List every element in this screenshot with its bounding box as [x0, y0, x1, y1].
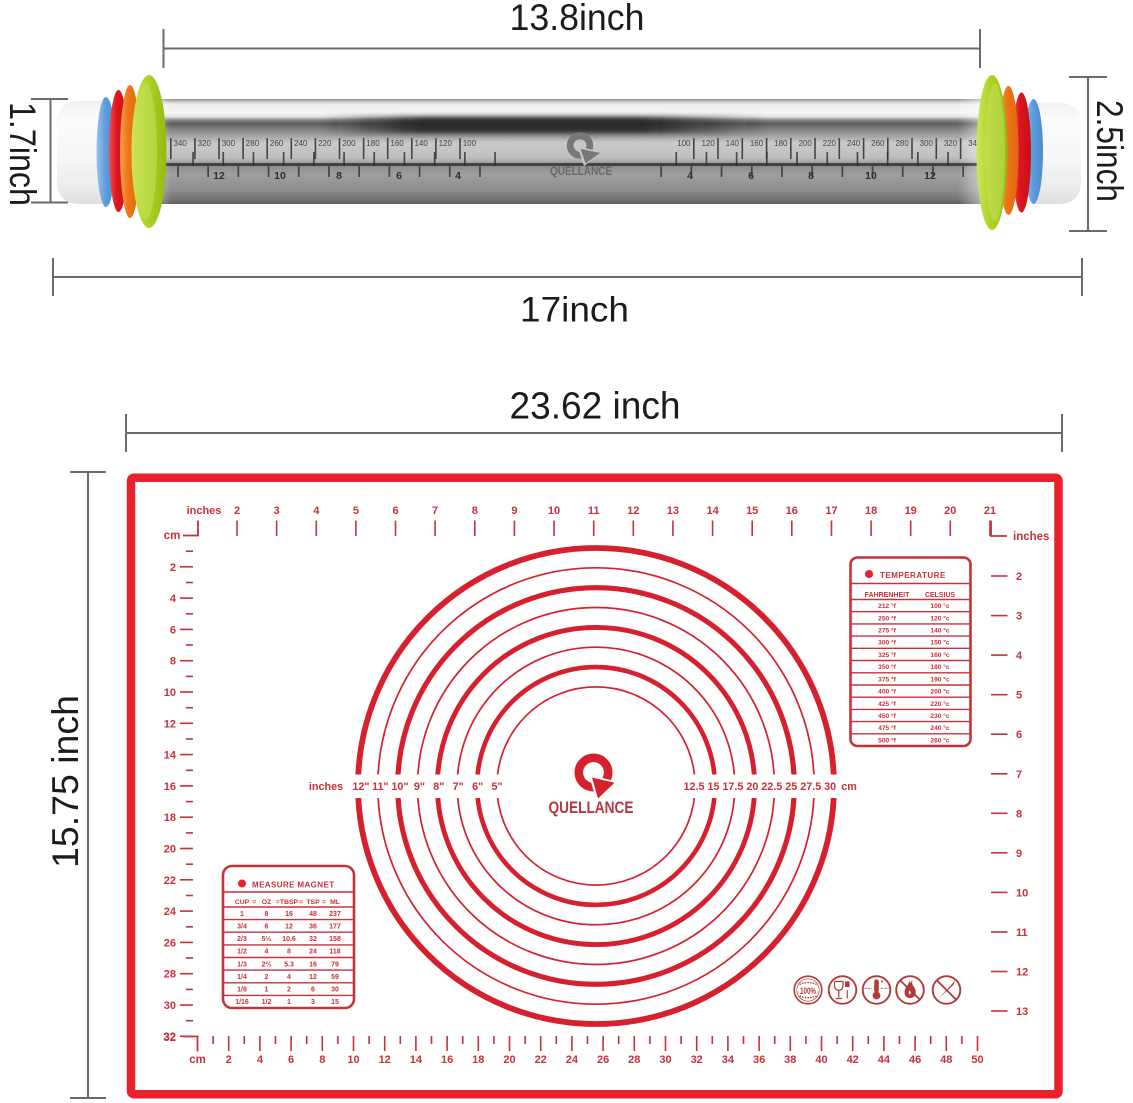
svg-text:48: 48: [940, 1054, 952, 1066]
svg-text:4: 4: [287, 974, 291, 981]
svg-text:18: 18: [472, 1054, 484, 1066]
svg-text:190 °c: 190 °c: [930, 675, 949, 683]
svg-text:27.5: 27.5: [800, 781, 821, 793]
svg-text:16: 16: [164, 781, 176, 793]
svg-text:25: 25: [785, 781, 797, 793]
svg-text:200: 200: [798, 139, 812, 148]
svg-text:38: 38: [784, 1054, 796, 1066]
svg-text:12: 12: [213, 170, 225, 182]
svg-text:=: =: [322, 899, 326, 906]
svg-text:10": 10": [391, 781, 408, 793]
svg-text:7: 7: [1016, 769, 1022, 781]
svg-text:inches: inches: [309, 781, 343, 793]
svg-text:9": 9": [414, 781, 425, 793]
svg-text:220: 220: [823, 139, 837, 148]
svg-text:MEASURE MAGNET: MEASURE MAGNET: [252, 881, 335, 890]
svg-text:1/3: 1/3: [237, 961, 247, 968]
svg-text:160: 160: [390, 139, 404, 148]
svg-text:12: 12: [627, 505, 639, 517]
svg-text:10: 10: [1016, 887, 1028, 899]
svg-text:8": 8": [433, 781, 444, 793]
svg-text:280: 280: [895, 139, 909, 148]
svg-text:16: 16: [285, 911, 293, 918]
svg-text:158: 158: [329, 936, 341, 943]
svg-text:10: 10: [548, 505, 560, 517]
svg-text:1/8: 1/8: [237, 987, 247, 994]
svg-text:CUP: CUP: [235, 899, 250, 906]
svg-text:20: 20: [746, 781, 758, 793]
svg-text:10: 10: [865, 170, 877, 182]
svg-text:4: 4: [687, 170, 693, 182]
svg-text:QUELLANCE: QUELLANCE: [549, 798, 634, 817]
svg-text:4: 4: [265, 949, 269, 956]
svg-text:11: 11: [1016, 927, 1028, 939]
svg-text:160: 160: [750, 139, 764, 148]
svg-text:12: 12: [379, 1054, 391, 1066]
svg-text:9: 9: [1016, 848, 1022, 860]
svg-text:36: 36: [309, 923, 317, 930]
svg-text:cm: cm: [841, 781, 857, 793]
svg-text:14: 14: [706, 505, 719, 517]
svg-text:2: 2: [1016, 571, 1022, 583]
svg-text:2⅔: 2⅔: [262, 961, 272, 968]
svg-text:6: 6: [392, 505, 398, 517]
svg-text:22: 22: [535, 1054, 547, 1066]
svg-text:40: 40: [815, 1054, 827, 1066]
svg-text:16: 16: [309, 961, 317, 968]
svg-text:59: 59: [331, 974, 339, 981]
svg-text:5: 5: [353, 505, 359, 517]
svg-text:7: 7: [432, 505, 438, 517]
svg-text:3: 3: [274, 505, 280, 517]
svg-text:32: 32: [309, 936, 317, 943]
svg-text:212 °f: 212 °f: [878, 602, 896, 610]
svg-text:237: 237: [329, 911, 341, 918]
svg-text:8: 8: [336, 170, 342, 182]
svg-text:18: 18: [164, 812, 176, 824]
svg-text:12.5: 12.5: [683, 781, 704, 793]
svg-text:=: =: [299, 899, 303, 906]
svg-text:10: 10: [347, 1054, 359, 1066]
svg-text:100%: 100%: [800, 986, 816, 996]
svg-text:ML: ML: [330, 899, 340, 906]
svg-text:3: 3: [311, 999, 315, 1006]
svg-text:8: 8: [808, 170, 814, 182]
svg-text:120 °c: 120 °c: [930, 614, 949, 622]
svg-text:cm: cm: [189, 1054, 206, 1066]
svg-text:1.7inch: 1.7inch: [2, 102, 43, 206]
svg-text:inches: inches: [1013, 531, 1049, 543]
svg-text:15: 15: [331, 999, 339, 1006]
svg-text:TBSP: TBSP: [280, 899, 299, 906]
svg-text:300: 300: [920, 139, 934, 148]
svg-text:6: 6: [748, 170, 754, 182]
svg-text:20: 20: [164, 844, 176, 856]
svg-text:24: 24: [164, 906, 177, 918]
svg-text:20: 20: [944, 505, 956, 517]
svg-text:8: 8: [1016, 808, 1022, 820]
svg-text:1: 1: [265, 987, 269, 994]
svg-text:48: 48: [309, 911, 317, 918]
svg-text:350 °f: 350 °f: [878, 663, 896, 671]
svg-text:FAHRENHEIT: FAHRENHEIT: [865, 592, 910, 599]
svg-text:220 °c: 220 °c: [930, 700, 949, 708]
svg-text:=: =: [276, 899, 280, 906]
svg-text:7": 7": [453, 781, 464, 793]
svg-text:79: 79: [331, 961, 339, 968]
svg-text:10: 10: [164, 687, 176, 699]
svg-text:cm: cm: [164, 530, 181, 542]
svg-text:CELSIUS: CELSIUS: [925, 592, 956, 599]
svg-text:12: 12: [309, 974, 317, 981]
svg-text:12: 12: [285, 923, 293, 930]
svg-text:14: 14: [410, 1054, 423, 1066]
svg-text:8: 8: [170, 656, 176, 668]
svg-text:250 °f: 250 °f: [878, 614, 896, 622]
svg-text:15: 15: [707, 781, 719, 793]
svg-text:275 °f: 275 °f: [878, 627, 896, 635]
svg-text:400 °f: 400 °f: [878, 688, 896, 696]
svg-text:9: 9: [511, 505, 517, 517]
svg-text:6: 6: [288, 1054, 294, 1066]
svg-text:180: 180: [774, 139, 788, 148]
svg-text:4: 4: [1016, 650, 1023, 662]
svg-text:325 °f: 325 °f: [878, 651, 896, 659]
svg-text:24: 24: [309, 949, 317, 956]
svg-text:200: 200: [342, 139, 356, 148]
svg-text:17inch: 17inch: [520, 291, 629, 330]
svg-text:2: 2: [170, 562, 176, 574]
svg-text:2/3: 2/3: [237, 936, 247, 943]
svg-text:2: 2: [234, 505, 240, 517]
svg-text:180: 180: [366, 139, 380, 148]
svg-text:120: 120: [701, 139, 715, 148]
svg-text:20: 20: [503, 1054, 515, 1066]
svg-text:450 °f: 450 °f: [878, 712, 896, 720]
svg-text:320: 320: [198, 139, 212, 148]
svg-text:13.8inch: 13.8inch: [510, 0, 645, 38]
svg-text:140: 140: [415, 139, 429, 148]
svg-text:12: 12: [164, 718, 176, 730]
svg-text:4: 4: [455, 170, 461, 182]
svg-text:30: 30: [164, 1000, 176, 1012]
svg-text:1/2: 1/2: [237, 949, 247, 956]
svg-text:14: 14: [164, 750, 177, 762]
svg-text:12: 12: [924, 170, 936, 182]
svg-text:140 °c: 140 °c: [930, 627, 949, 635]
svg-text:5⅓: 5⅓: [262, 936, 272, 943]
svg-text:13: 13: [667, 505, 679, 517]
svg-text:5.3: 5.3: [284, 961, 294, 968]
svg-text:8: 8: [319, 1054, 325, 1066]
svg-text:46: 46: [909, 1054, 921, 1066]
svg-text:16: 16: [786, 505, 798, 517]
svg-text:5": 5": [492, 781, 503, 793]
svg-text:1/4: 1/4: [237, 974, 247, 981]
svg-text:28: 28: [164, 969, 176, 981]
svg-text:230 °c: 230 °c: [930, 712, 949, 720]
svg-text:6: 6: [265, 923, 269, 930]
svg-text:15.75 inch: 15.75 inch: [45, 695, 86, 868]
svg-text:340: 340: [174, 139, 188, 148]
svg-text:1/2: 1/2: [262, 999, 272, 1006]
svg-text:28: 28: [628, 1054, 640, 1066]
svg-text:425 °f: 425 °f: [878, 700, 896, 708]
svg-text:22.5: 22.5: [761, 781, 782, 793]
svg-text:1: 1: [287, 999, 291, 1006]
svg-text:4: 4: [170, 593, 177, 605]
svg-text:118: 118: [329, 949, 340, 956]
svg-text:160 °c: 160 °c: [930, 651, 949, 659]
svg-text:26: 26: [164, 937, 176, 949]
svg-text:475 °f: 475 °f: [878, 724, 896, 732]
svg-text:30: 30: [659, 1054, 671, 1066]
svg-text:180 °c: 180 °c: [930, 663, 949, 671]
svg-text:6: 6: [396, 170, 402, 182]
svg-text:2: 2: [287, 987, 291, 994]
svg-text:240: 240: [847, 139, 861, 148]
svg-text:1: 1: [240, 911, 244, 918]
svg-text:500 °f: 500 °f: [878, 736, 896, 744]
svg-text:34: 34: [722, 1054, 735, 1066]
svg-text:2: 2: [265, 974, 269, 981]
svg-text:300 °f: 300 °f: [878, 639, 896, 647]
svg-text:240 °c: 240 °c: [930, 724, 949, 732]
svg-text:44: 44: [878, 1054, 891, 1066]
svg-text:3: 3: [1016, 611, 1022, 623]
svg-text:10.6: 10.6: [282, 936, 296, 943]
svg-text:8: 8: [265, 911, 269, 918]
svg-text:260: 260: [270, 139, 284, 148]
svg-text:OZ: OZ: [262, 899, 271, 906]
svg-text:300: 300: [222, 139, 236, 148]
svg-text:21: 21: [984, 505, 996, 517]
svg-text:3/4: 3/4: [237, 923, 247, 930]
svg-text:100 °c: 100 °c: [930, 602, 949, 610]
svg-text:375 °f: 375 °f: [878, 675, 896, 683]
svg-text:36: 36: [753, 1054, 765, 1066]
svg-text:30: 30: [824, 781, 836, 793]
svg-text:120: 120: [439, 139, 453, 148]
svg-text:17.5: 17.5: [722, 781, 743, 793]
svg-text:22: 22: [164, 875, 176, 887]
svg-text:17: 17: [825, 505, 837, 517]
svg-text:30: 30: [331, 987, 339, 994]
svg-text:177: 177: [329, 923, 341, 930]
svg-text:19: 19: [905, 505, 917, 517]
svg-text:5: 5: [1016, 690, 1022, 702]
svg-text:8: 8: [287, 949, 291, 956]
svg-text:240: 240: [294, 139, 308, 148]
svg-text:23.62 inch: 23.62 inch: [510, 386, 681, 428]
svg-text:TSP: TSP: [306, 899, 320, 906]
svg-text:1/16: 1/16: [235, 999, 249, 1006]
svg-text:50: 50: [971, 1054, 983, 1066]
svg-text:16: 16: [441, 1054, 453, 1066]
svg-text:TEMPERATURE: TEMPERATURE: [880, 571, 946, 580]
svg-text:100: 100: [463, 139, 477, 148]
svg-text:6": 6": [472, 781, 483, 793]
svg-text:100: 100: [677, 139, 691, 148]
svg-text:150 °c: 150 °c: [930, 639, 949, 647]
svg-text:15: 15: [746, 505, 758, 517]
svg-text:32: 32: [163, 1032, 176, 1044]
svg-text:8: 8: [472, 505, 478, 517]
svg-text:260 °c: 260 °c: [930, 736, 949, 744]
svg-text:24: 24: [566, 1054, 579, 1066]
svg-text:140: 140: [726, 139, 740, 148]
svg-text:12": 12": [352, 781, 369, 793]
svg-text:200 °c: 200 °c: [930, 688, 949, 696]
svg-text:2.5inch: 2.5inch: [1089, 100, 1130, 202]
svg-text:2: 2: [226, 1054, 232, 1066]
svg-text:6: 6: [1016, 729, 1022, 741]
svg-text:11: 11: [588, 505, 600, 517]
svg-text:260: 260: [871, 139, 885, 148]
svg-text:13: 13: [1016, 1006, 1028, 1018]
svg-text:QUELLANCE: QUELLANCE: [550, 164, 612, 178]
svg-text:10: 10: [274, 170, 286, 182]
svg-text:26: 26: [597, 1054, 609, 1066]
svg-text:32: 32: [691, 1054, 703, 1066]
svg-text:11": 11": [372, 781, 389, 793]
svg-text:280: 280: [246, 139, 260, 148]
svg-text:4: 4: [257, 1054, 264, 1066]
svg-text:12: 12: [1016, 967, 1028, 979]
svg-text:=: =: [252, 899, 256, 906]
svg-text:4: 4: [313, 505, 320, 517]
svg-text:220: 220: [318, 139, 332, 148]
svg-text:6: 6: [311, 987, 315, 994]
svg-text:inches: inches: [187, 505, 222, 517]
svg-text:6: 6: [170, 624, 176, 636]
svg-text:18: 18: [865, 505, 877, 517]
svg-text:42: 42: [847, 1054, 859, 1066]
svg-text:320: 320: [944, 139, 958, 148]
